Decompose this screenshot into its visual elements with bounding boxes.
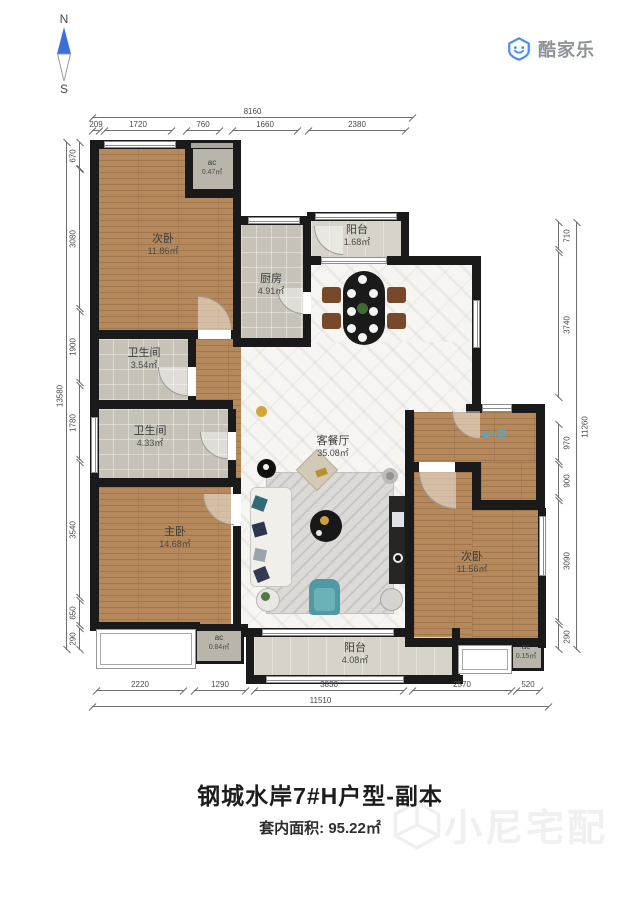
plate xyxy=(347,307,356,316)
dim-right-overall: 11260 xyxy=(576,222,577,650)
dim-left-seg: 1780 xyxy=(79,385,80,460)
plate xyxy=(369,307,378,316)
window xyxy=(315,213,397,220)
entry-door-opening xyxy=(482,404,512,412)
bay-window-bedroom xyxy=(458,645,512,674)
armchair-seat xyxy=(314,588,335,611)
dining-chair xyxy=(322,313,341,329)
dim-right-seg: 290 xyxy=(558,624,559,650)
floor-foyer-east xyxy=(481,462,536,504)
wall xyxy=(188,339,196,367)
door-opening xyxy=(303,292,311,314)
door-opening xyxy=(233,494,241,526)
dim-left-seg: 1900 xyxy=(79,311,80,383)
window xyxy=(473,300,480,348)
dining-chair xyxy=(322,287,341,303)
side-table-gray xyxy=(380,588,403,611)
wall xyxy=(228,409,236,432)
wall xyxy=(536,404,545,510)
floor-ac-top xyxy=(190,148,234,193)
plan-title: 钢城水岸7#H户型-副本 xyxy=(0,777,640,811)
dim-bottom-seg: 2570 xyxy=(412,690,512,691)
area-label: 套内面积: xyxy=(259,820,324,837)
dim-bottom-seg: 520 xyxy=(516,690,540,691)
floor-dining xyxy=(311,262,472,344)
dining-centerpiece xyxy=(357,303,368,314)
window-sill xyxy=(191,143,233,148)
dim-left-overall: 13580 xyxy=(66,142,67,650)
dim-top-overall: 8160 xyxy=(92,117,413,118)
area-value: 95.22㎡ xyxy=(328,820,381,837)
window xyxy=(539,516,546,576)
entrance-arrow-icon: ◀ xyxy=(481,429,488,439)
plate xyxy=(347,289,356,298)
dim-bottom-seg: 2220 xyxy=(96,690,184,691)
tv-cabinet-item xyxy=(392,512,404,527)
wall xyxy=(233,140,241,347)
entrance-label: 入口 xyxy=(488,429,506,439)
plant xyxy=(261,592,270,601)
dim-left-seg: 290 xyxy=(79,628,80,650)
dim-left-seg: 3080 xyxy=(79,169,80,309)
window xyxy=(104,141,176,148)
dim-bottom-seg: 3830 xyxy=(254,690,404,691)
coffee-table-decor xyxy=(320,516,329,525)
wall xyxy=(90,400,233,409)
coffee-table xyxy=(310,510,342,542)
dining-chair xyxy=(387,313,406,329)
wall xyxy=(233,526,241,630)
wall xyxy=(233,338,311,347)
dim-left-seg: 670 xyxy=(79,142,80,169)
wall xyxy=(455,462,477,472)
dim-right-seg: 970 xyxy=(558,424,559,462)
dim-bottom-seg: 1290 xyxy=(194,690,246,691)
wall xyxy=(185,140,193,196)
plate xyxy=(358,333,367,342)
plate xyxy=(369,289,378,298)
dim-left-seg: 650 xyxy=(79,600,80,626)
balcony-slider-door xyxy=(321,257,387,264)
wall xyxy=(481,500,545,510)
dim-right-seg: 710 xyxy=(558,222,559,250)
wall xyxy=(401,256,481,265)
wall xyxy=(90,140,99,631)
wall xyxy=(196,624,248,631)
window xyxy=(91,417,98,473)
dim-top-seg: 1720 xyxy=(104,130,172,131)
dim-bottom-overall: 11510 xyxy=(92,706,549,707)
wall xyxy=(405,410,414,638)
floorplan-canvas: 次卧 11.86㎡ ac 0.47㎡ 厨房 4.91㎡ 阳台 1.68㎡ 卫生间… xyxy=(0,0,640,905)
plate xyxy=(358,275,367,284)
bay-window-master xyxy=(96,629,196,669)
balcony-slider-door xyxy=(262,629,394,636)
dining-chair xyxy=(387,287,406,303)
dim-left-seg: 3540 xyxy=(79,462,80,598)
window xyxy=(248,217,300,224)
coffee-table-decor xyxy=(316,530,322,536)
dim-right-seg: 3740 xyxy=(558,252,559,398)
door-opening xyxy=(419,462,455,472)
plate xyxy=(369,324,378,333)
floor-kitchen xyxy=(241,222,303,340)
dim-top-seg: 209 xyxy=(92,130,100,131)
floor-lamp xyxy=(256,406,267,417)
entrance-marker: ◀入口 xyxy=(481,427,506,440)
door-opening xyxy=(228,432,236,460)
plan-area-summary: 套内面积: 95.22㎡ xyxy=(0,817,640,838)
wall xyxy=(90,478,241,487)
door-opening xyxy=(198,330,231,339)
door-opening xyxy=(188,367,196,396)
wall xyxy=(303,216,311,292)
tv-cabinet-knob xyxy=(393,553,403,563)
floor-ac-master xyxy=(194,628,244,664)
plant-gray-inner xyxy=(386,472,394,480)
wall xyxy=(233,487,241,494)
side-table-decor xyxy=(263,464,269,470)
dim-top-seg: 2380 xyxy=(308,130,406,131)
wall xyxy=(307,256,321,265)
plate xyxy=(347,324,356,333)
dim-right-seg: 900 xyxy=(558,464,559,498)
dim-top-seg: 1660 xyxy=(232,130,298,131)
sofa-pillow xyxy=(253,548,267,562)
dim-top-seg: 760 xyxy=(186,130,220,131)
dim-right-seg: 3090 xyxy=(558,500,559,622)
floor-bedroom-br-east xyxy=(472,510,538,638)
